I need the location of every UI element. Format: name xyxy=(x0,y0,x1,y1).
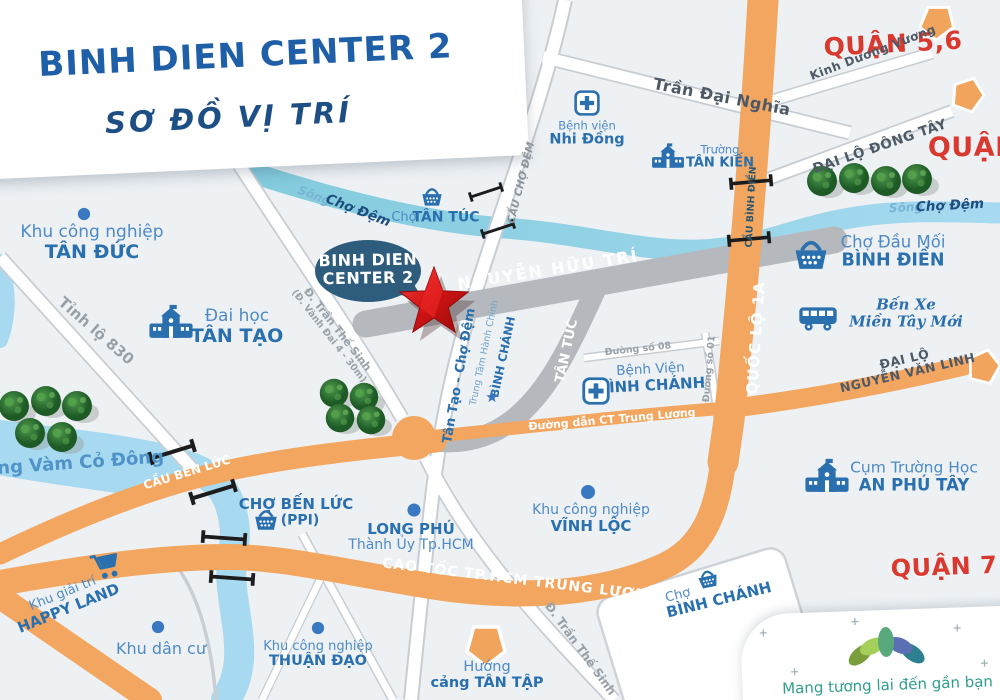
roundabout xyxy=(392,416,436,460)
map-canvas: BINH DIEN CENTER 2 SƠ ĐỒ VỊ TRÍ + + + + … xyxy=(0,0,1000,700)
arrow-dong-tay xyxy=(948,73,988,114)
page-title: BINH DIEN CENTER 2 xyxy=(37,26,453,85)
arrow-kinh-duong-vuong xyxy=(915,0,961,44)
sparkle-icon: + xyxy=(980,656,990,669)
title-card: BINH DIEN CENTER 2 SƠ ĐỒ VỊ TRÍ xyxy=(0,0,529,181)
sparkle-icon: + xyxy=(952,621,962,634)
sparkle-icon: + xyxy=(790,665,800,678)
arrow-huong-cang-tan-tap xyxy=(467,627,505,666)
arrow-nguyen-van-linh xyxy=(965,346,1000,384)
road-riverside-lane xyxy=(176,565,216,700)
sparkle-icon: + xyxy=(758,626,768,639)
page-subtitle: SƠ ĐỒ VỊ TRÍ xyxy=(104,95,352,140)
brand-panel: + + + + + Mang tương lai đến gần bạn xyxy=(740,605,1000,700)
sparkle-icon: + xyxy=(850,615,860,628)
brand-slogan: Mang tương lai đến gần bạn xyxy=(742,671,1000,699)
